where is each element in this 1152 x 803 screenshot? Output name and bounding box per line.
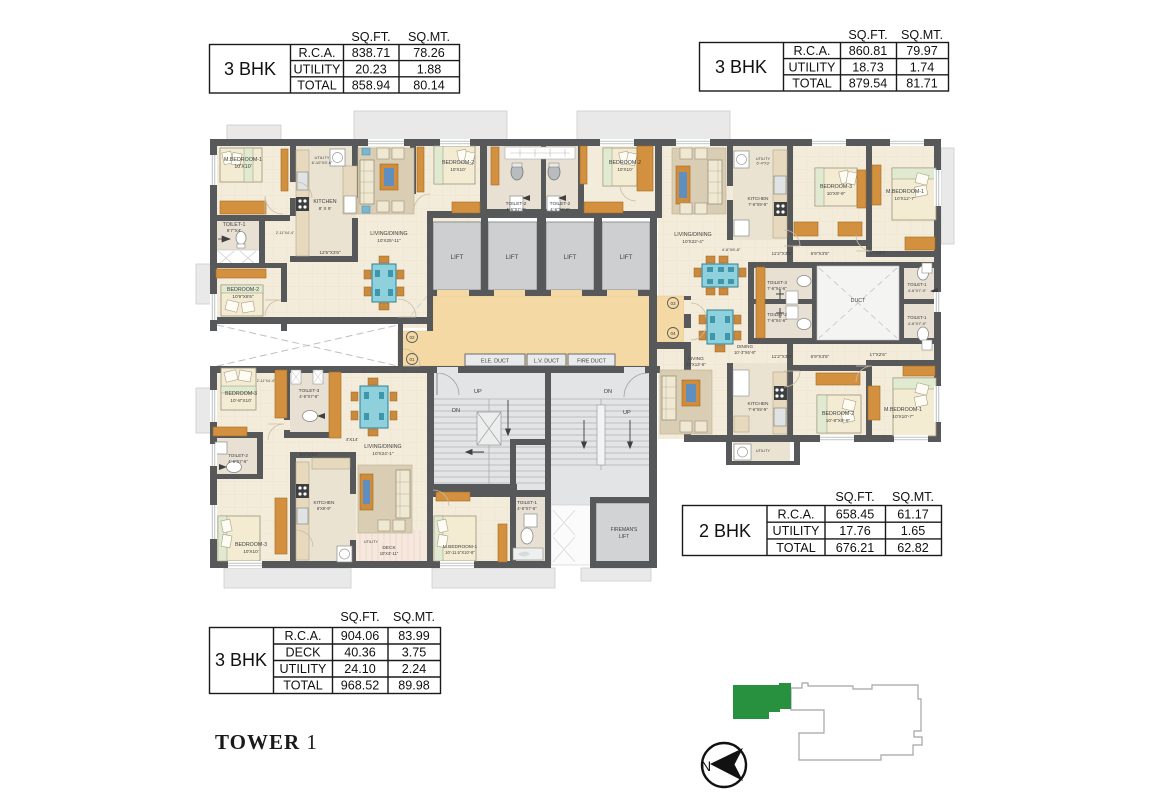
svg-text:TOTAL: TOTAL xyxy=(792,77,831,91)
svg-text:UTILITY: UTILITY xyxy=(280,662,327,676)
svg-text:DUCT: DUCT xyxy=(851,298,866,304)
svg-text:R.C.A.: R.C.A. xyxy=(793,44,830,58)
svg-text:SQ.FT.: SQ.FT. xyxy=(351,30,390,44)
svg-text:18.73: 18.73 xyxy=(852,60,884,74)
svg-text:LIVING/DINING: LIVING/DINING xyxy=(370,231,407,237)
svg-text:10'X10'-7": 10'X10'-7" xyxy=(892,414,914,419)
svg-text:6'9"X3'5": 6'9"X3'5" xyxy=(811,354,830,359)
svg-text:7'-6"X9'-9": 7'-6"X9'-9" xyxy=(748,202,768,207)
svg-text:6'9"X3'5": 6'9"X3'5" xyxy=(811,251,830,256)
svg-text:10'-8"X9'-9": 10'-8"X9'-9" xyxy=(826,418,851,423)
svg-text:SQ.MT.: SQ.MT. xyxy=(901,28,943,42)
svg-text:M.BEDROOM-1: M.BEDROOM-1 xyxy=(886,189,924,195)
svg-text:TOTAL: TOTAL xyxy=(297,79,336,93)
svg-text:61.17: 61.17 xyxy=(897,508,929,522)
svg-text:04: 04 xyxy=(670,331,676,336)
svg-text:R.C.A.: R.C.A. xyxy=(777,508,814,522)
svg-text:658.45: 658.45 xyxy=(836,508,875,522)
svg-text:10'X10': 10'X10' xyxy=(234,164,251,170)
svg-text:7'-6"X4'-6": 7'-6"X4'-6" xyxy=(767,286,787,291)
svg-text:904.06: 904.06 xyxy=(341,629,380,643)
svg-text:4'-6"X7'-6": 4'-6"X7'-6" xyxy=(550,207,570,212)
svg-text:BEDROOM-3: BEDROOM-3 xyxy=(235,542,267,548)
svg-text:KITCHEN: KITCHEN xyxy=(313,199,336,205)
svg-text:968.52: 968.52 xyxy=(341,679,380,693)
svg-text:2.24: 2.24 xyxy=(402,662,427,676)
svg-text:10'X22'-4": 10'X22'-4" xyxy=(682,239,704,244)
svg-text:UTILITY: UTILITY xyxy=(756,449,771,453)
svg-text:81.71: 81.71 xyxy=(906,77,938,91)
svg-text:80.14: 80.14 xyxy=(413,79,445,93)
svg-text:BEDROOM-2: BEDROOM-2 xyxy=(227,287,259,293)
svg-text:8'5"X3'6": 8'5"X3'6" xyxy=(300,452,319,457)
svg-text:10'X25'-11": 10'X25'-11" xyxy=(377,238,401,243)
svg-text:10'-3"X6'-8": 10'-3"X6'-8" xyxy=(734,350,756,355)
svg-text:6'7"X4': 6'7"X4' xyxy=(227,228,242,233)
svg-text:838.71: 838.71 xyxy=(352,46,391,60)
svg-text:62.82: 62.82 xyxy=(897,541,929,555)
svg-text:M.BEDROOM-1: M.BEDROOM-1 xyxy=(224,157,262,163)
svg-text:SQ.FT.: SQ.FT. xyxy=(340,610,379,624)
svg-text:TOILET-1: TOILET-1 xyxy=(908,282,928,287)
svg-text:DECK: DECK xyxy=(286,646,322,660)
svg-text:FIRE DUCT: FIRE DUCT xyxy=(577,359,606,365)
svg-text:11'2"X3'5": 11'2"X3'5" xyxy=(772,251,793,256)
svg-text:ELE. DUCT: ELE. DUCT xyxy=(481,359,510,365)
svg-text:SQ.FT.: SQ.FT. xyxy=(848,28,887,42)
svg-text:02: 02 xyxy=(409,335,415,340)
svg-text:TOTAL: TOTAL xyxy=(283,679,322,693)
svg-text:N: N xyxy=(701,758,711,774)
svg-text:BEDROOM-3: BEDROOM-3 xyxy=(820,184,852,190)
svg-text:1.88: 1.88 xyxy=(417,62,442,76)
svg-text:TOILET-1: TOILET-1 xyxy=(908,315,928,320)
svg-text:2'-11"X4'-4": 2'-11"X4'-4" xyxy=(257,379,276,383)
svg-text:17'X2'6": 17'X2'6" xyxy=(869,250,886,255)
svg-text:40.36: 40.36 xyxy=(344,646,376,660)
svg-text:LIFT: LIFT xyxy=(620,254,633,261)
svg-text:20.23: 20.23 xyxy=(355,62,387,76)
svg-text:17'X2'6": 17'X2'6" xyxy=(869,352,886,357)
svg-text:10'X10': 10'X10' xyxy=(243,549,258,554)
svg-text:LIFT: LIFT xyxy=(619,534,629,540)
svg-text:89.98: 89.98 xyxy=(398,679,430,693)
svg-text:UTILITY: UTILITY xyxy=(773,524,820,538)
svg-text:3 BHK: 3 BHK xyxy=(224,59,276,79)
svg-text:4'X14': 4'X14' xyxy=(346,437,359,442)
svg-text:1.74: 1.74 xyxy=(910,60,935,74)
svg-text:4'-6"X7'-6": 4'-6"X7'-6" xyxy=(517,506,537,511)
svg-text:LIVING/DINING: LIVING/DINING xyxy=(674,232,711,238)
svg-text:L.V. DUCT: L.V. DUCT xyxy=(534,359,560,365)
svg-text:10'X10': 10'X10' xyxy=(450,167,465,172)
svg-text:SQ.FT.: SQ.FT. xyxy=(835,490,874,504)
svg-text:12'5"X3'6": 12'5"X3'6" xyxy=(319,250,341,255)
svg-text:10'X9'-9": 10'X9'-9" xyxy=(827,191,846,196)
svg-text:4'-6"X7'-6": 4'-6"X7'-6" xyxy=(506,207,526,212)
svg-text:24.10: 24.10 xyxy=(344,662,376,676)
svg-text:860.81: 860.81 xyxy=(849,44,888,58)
svg-text:LIFT: LIFT xyxy=(564,254,577,261)
svg-text:UP: UP xyxy=(623,410,631,416)
svg-text:TOILET-3: TOILET-3 xyxy=(767,280,787,285)
svg-text:4'-6"X7'-6": 4'-6"X7'-6" xyxy=(299,394,319,399)
svg-text:4'-6"X7'-6": 4'-6"X7'-6" xyxy=(228,459,248,464)
svg-text:6'-4"X3': 6'-4"X3' xyxy=(757,162,770,166)
svg-text:83.99: 83.99 xyxy=(398,629,430,643)
svg-text:DN: DN xyxy=(452,408,460,414)
svg-text:3.75: 3.75 xyxy=(402,646,427,660)
svg-text:4'-6"X7'-9": 4'-6"X7'-9" xyxy=(908,321,927,326)
svg-text:DINING: DINING xyxy=(737,344,754,349)
svg-text:R.C.A.: R.C.A. xyxy=(284,629,321,643)
svg-text:UTILITY: UTILITY xyxy=(364,540,379,544)
svg-text:10'X10': 10'X10' xyxy=(617,167,632,172)
svg-text:879.54: 879.54 xyxy=(849,77,888,91)
svg-text:FIREMAN'S: FIREMAN'S xyxy=(611,527,638,533)
svg-text:UTILITY: UTILITY xyxy=(789,60,836,74)
svg-text:UTILITY: UTILITY xyxy=(294,62,341,76)
svg-text:10'-11.5"X10'-8": 10'-11.5"X10'-8" xyxy=(445,550,475,555)
svg-text:11'2"X3'5": 11'2"X3'5" xyxy=(772,354,793,359)
svg-text:7'-6"X4'-6": 7'-6"X4'-6" xyxy=(767,318,787,323)
svg-text:10'9"X8'6": 10'9"X8'6" xyxy=(232,294,254,299)
svg-text:TOWER 1: TOWER 1 xyxy=(215,730,318,754)
svg-text:79.97: 79.97 xyxy=(906,44,938,58)
svg-text:10'X13'-6": 10'X13'-6" xyxy=(686,362,706,367)
svg-text:TOTAL: TOTAL xyxy=(776,541,815,555)
svg-text:10'X12'-7": 10'X12'-7" xyxy=(894,196,916,201)
svg-text:8'X9'-9": 8'X9'-9" xyxy=(317,506,332,511)
svg-text:TOILET-2: TOILET-2 xyxy=(767,312,787,317)
svg-text:858.94: 858.94 xyxy=(352,79,391,93)
svg-text:R.C.A.: R.C.A. xyxy=(298,46,335,60)
svg-text:03: 03 xyxy=(670,301,676,306)
svg-text:SQ.MT.: SQ.MT. xyxy=(892,490,934,504)
svg-text:M.BEDROOM-1: M.BEDROOM-1 xyxy=(884,407,922,413)
svg-text:LIFT: LIFT xyxy=(506,254,519,261)
svg-text:BEDROOM-3: BEDROOM-3 xyxy=(225,391,257,397)
svg-text:10'-8"X10': 10'-8"X10' xyxy=(230,398,251,403)
svg-text:3 BHK: 3 BHK xyxy=(215,650,267,670)
svg-text:UP: UP xyxy=(474,389,482,395)
svg-text:4'-6"X7'-9": 4'-6"X7'-9" xyxy=(908,288,927,293)
svg-text:10'X3'-11": 10'X3'-11" xyxy=(380,551,399,556)
svg-text:6'-10"X3'-6": 6'-10"X3'-6" xyxy=(312,160,333,165)
svg-text:2 BHK: 2 BHK xyxy=(699,521,751,541)
svg-text:676.21: 676.21 xyxy=(836,541,875,555)
svg-text:BEDROOM-2: BEDROOM-2 xyxy=(609,160,641,166)
svg-text:78.26: 78.26 xyxy=(413,46,445,60)
svg-text:LIFT: LIFT xyxy=(451,254,464,261)
svg-text:UTILITY: UTILITY xyxy=(756,157,771,161)
svg-text:7'-6"X9'-9": 7'-6"X9'-9" xyxy=(748,407,768,412)
svg-text:TOILET-2: TOILET-2 xyxy=(228,453,248,458)
svg-text:LIVING/DINING: LIVING/DINING xyxy=(364,444,401,450)
svg-text:SQ.MT.: SQ.MT. xyxy=(393,610,435,624)
svg-text:10'X24'-1": 10'X24'-1" xyxy=(372,451,394,456)
svg-text:1.65: 1.65 xyxy=(901,524,926,538)
svg-text:SQ.MT.: SQ.MT. xyxy=(408,30,450,44)
svg-text:3 BHK: 3 BHK xyxy=(715,57,767,77)
svg-text:8' X 9': 8' X 9' xyxy=(319,206,332,211)
svg-text:4'-6"X6'-8": 4'-6"X6'-8" xyxy=(722,247,741,252)
svg-text:BEDROOM-2: BEDROOM-2 xyxy=(822,411,854,417)
svg-text:BEDROOM-2: BEDROOM-2 xyxy=(442,160,474,166)
svg-text:01: 01 xyxy=(409,357,415,362)
svg-text:2'-11"X4'-4": 2'-11"X4'-4" xyxy=(276,231,295,235)
svg-text:DN: DN xyxy=(604,389,612,395)
svg-text:17.76: 17.76 xyxy=(839,524,871,538)
svg-text:TOILET-1: TOILET-1 xyxy=(517,500,537,505)
